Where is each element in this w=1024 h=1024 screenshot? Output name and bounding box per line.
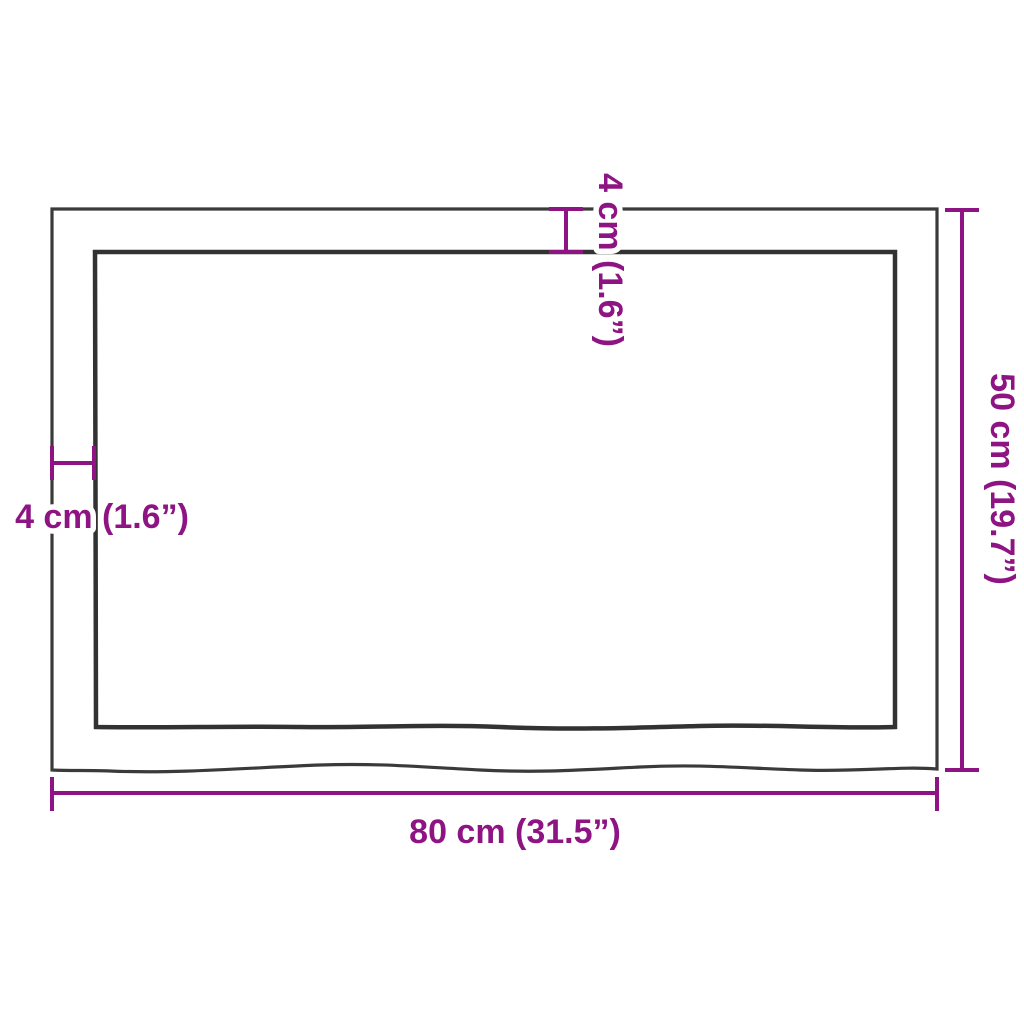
top-thickness-marker <box>549 209 583 252</box>
width-dimension-line <box>52 777 937 811</box>
left-thickness-label: 4 cm (1.6”) <box>15 498 189 536</box>
left-thickness-marker <box>52 446 94 480</box>
tabletop-outer-edge <box>52 209 937 772</box>
height-dimension-line <box>945 210 979 770</box>
product-dimension-diagram: 80 cm (31.5”) 50 cm (19.7”) 4 cm (1.6”) … <box>0 0 1024 1024</box>
tabletop-dimension-drawing: 80 cm (31.5”) 50 cm (19.7”) 4 cm (1.6”) … <box>0 0 1024 1024</box>
top-thickness-label: 4 cm (1.6”) <box>591 173 629 347</box>
tabletop-inner-edge <box>95 252 895 729</box>
width-dimension-label: 80 cm (31.5”) <box>409 813 621 851</box>
height-dimension-label: 50 cm (19.7”) <box>983 373 1021 585</box>
